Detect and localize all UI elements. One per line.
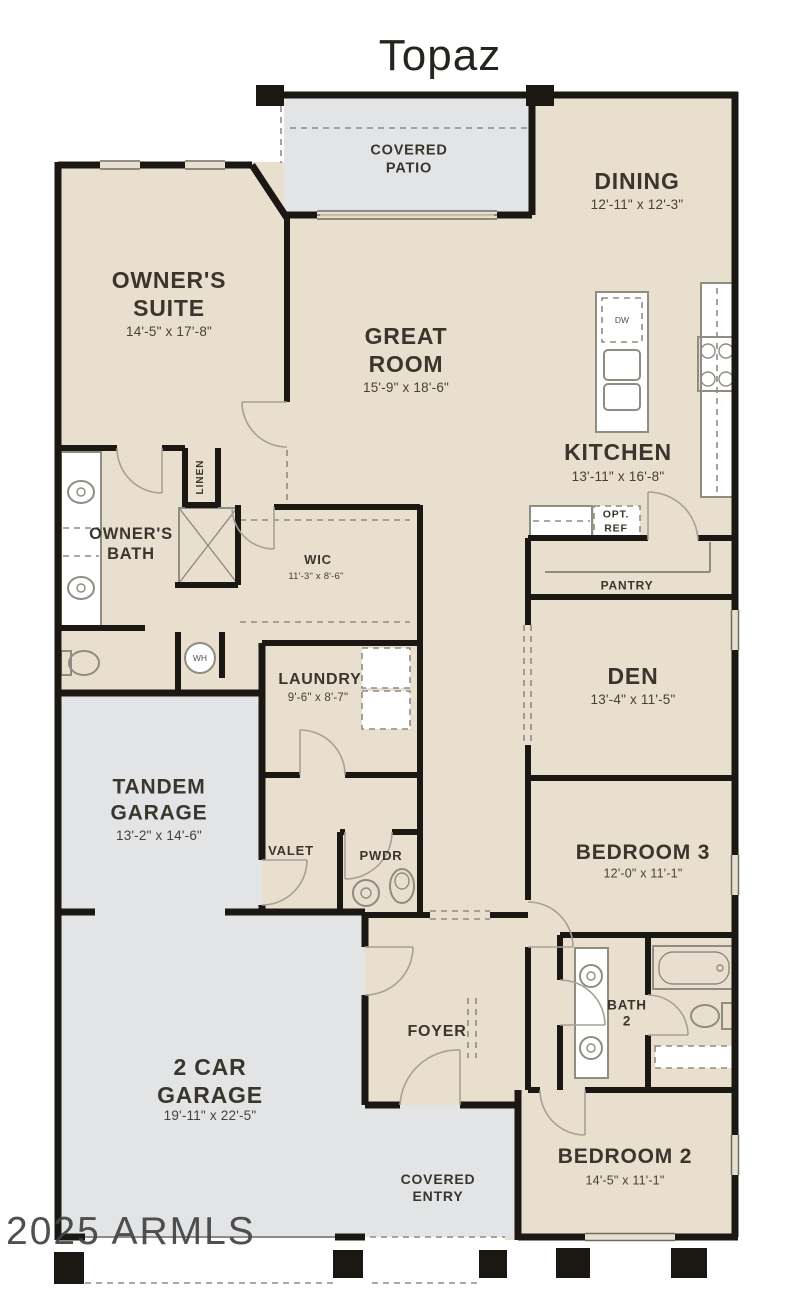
dims-bedroom2: 14'-5" x 11'-1" bbox=[586, 1173, 665, 1188]
label-two-car-garage: 2 CAR GARAGE bbox=[157, 1053, 263, 1109]
dims-dining: 12'-11" x 12'-3" bbox=[591, 197, 684, 213]
label-pantry: PANTRY bbox=[601, 579, 654, 594]
label-dining: DINING bbox=[594, 167, 679, 195]
water-heater-label: WH bbox=[193, 653, 207, 663]
dims-den: 13'-4" x 11'-5" bbox=[590, 692, 675, 708]
dims-tandem-garage: 13'-2" x 14'-6" bbox=[116, 828, 202, 844]
label-bedroom3: BEDROOM 3 bbox=[576, 840, 710, 866]
dims-owners-suite: 14'-5" x 17'-8" bbox=[126, 324, 212, 340]
dims-kitchen: 13'-11" x 16'-8" bbox=[572, 469, 665, 485]
label-pwdr: PWDR bbox=[360, 848, 403, 864]
label-great-room: GREAT ROOM bbox=[365, 322, 448, 378]
dims-bedroom3: 12'-0" x 11'-1" bbox=[604, 866, 683, 881]
label-tandem-garage: TANDEM GARAGE bbox=[111, 774, 208, 825]
label-laundry: LAUNDRY bbox=[278, 670, 361, 690]
label-den: DEN bbox=[608, 662, 659, 690]
label-covered-patio: COVERED PATIO bbox=[370, 142, 447, 177]
floor-plan-page: Topaz COVERED PATIO DINING 12'-11" x 12'… bbox=[0, 0, 800, 1292]
label-bedroom2: BEDROOM 2 bbox=[558, 1144, 692, 1170]
dims-great-room: 15'-9" x 18'-6" bbox=[363, 380, 449, 396]
label-covered-entry: COVERED ENTRY bbox=[401, 1171, 476, 1205]
label-opt-ref: OPT. REF bbox=[603, 508, 630, 535]
plan-title: Topaz bbox=[379, 31, 501, 81]
label-wic: WIC bbox=[304, 552, 332, 568]
label-valet: VALET bbox=[268, 843, 314, 859]
label-bath2: BATH 2 bbox=[607, 998, 647, 1031]
dishwasher-label: DW bbox=[615, 315, 629, 325]
label-foyer: FOYER bbox=[407, 1022, 466, 1042]
label-owners-suite: OWNER'S SUITE bbox=[112, 266, 227, 322]
armls-watermark: 2025 ARMLS bbox=[6, 1210, 256, 1254]
label-kitchen: KITCHEN bbox=[564, 438, 672, 466]
floor-plan-drawing bbox=[0, 0, 800, 1292]
dims-laundry: 9'-6" x 8'-7" bbox=[288, 691, 349, 705]
dims-wic: 11'-3" x 8'-6" bbox=[288, 571, 343, 583]
dims-two-car-garage: 19'-11" x 22'-5" bbox=[164, 1108, 257, 1124]
label-owners-bath: OWNER'S BATH bbox=[89, 524, 173, 564]
label-linen: LINEN bbox=[195, 460, 207, 495]
